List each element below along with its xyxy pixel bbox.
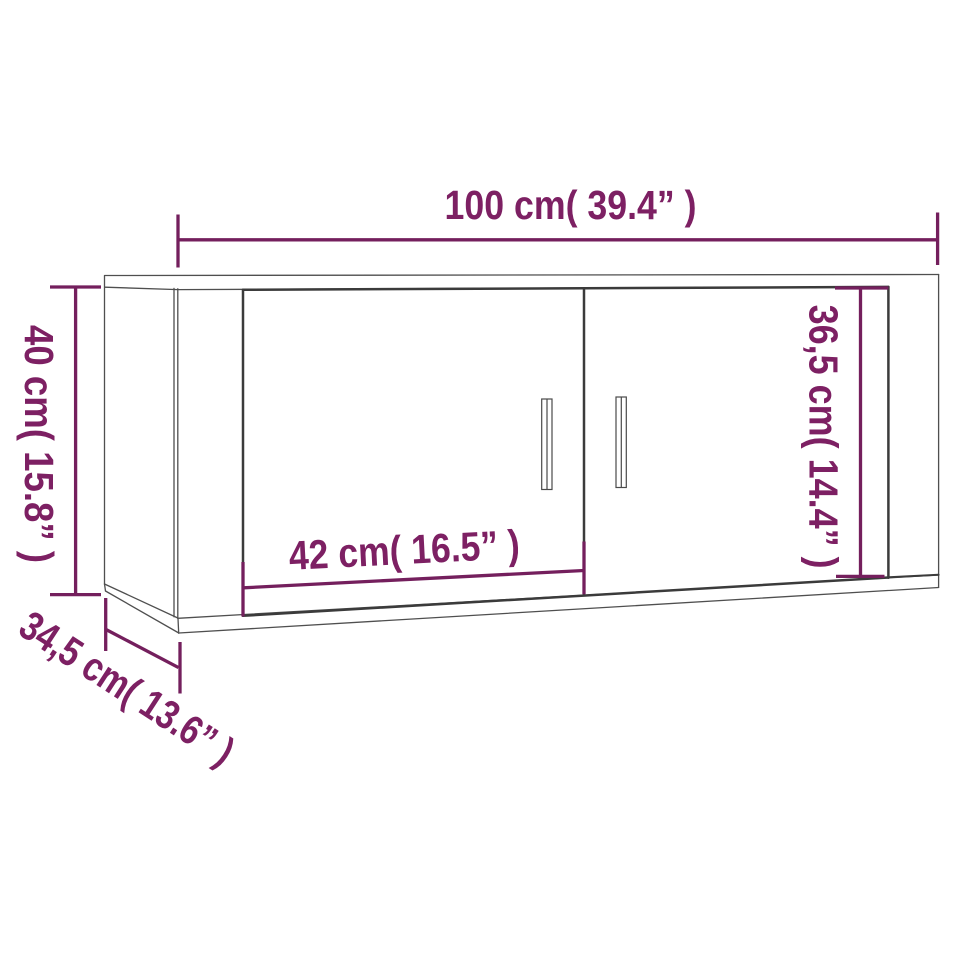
svg-text:100 cm( 39.4” ): 100 cm( 39.4” ) (445, 182, 697, 228)
svg-text:36,5 cm( 14.4” ): 36,5 cm( 14.4” ) (801, 305, 847, 569)
svg-text:40 cm( 15.8” ): 40 cm( 15.8” ) (16, 325, 62, 563)
